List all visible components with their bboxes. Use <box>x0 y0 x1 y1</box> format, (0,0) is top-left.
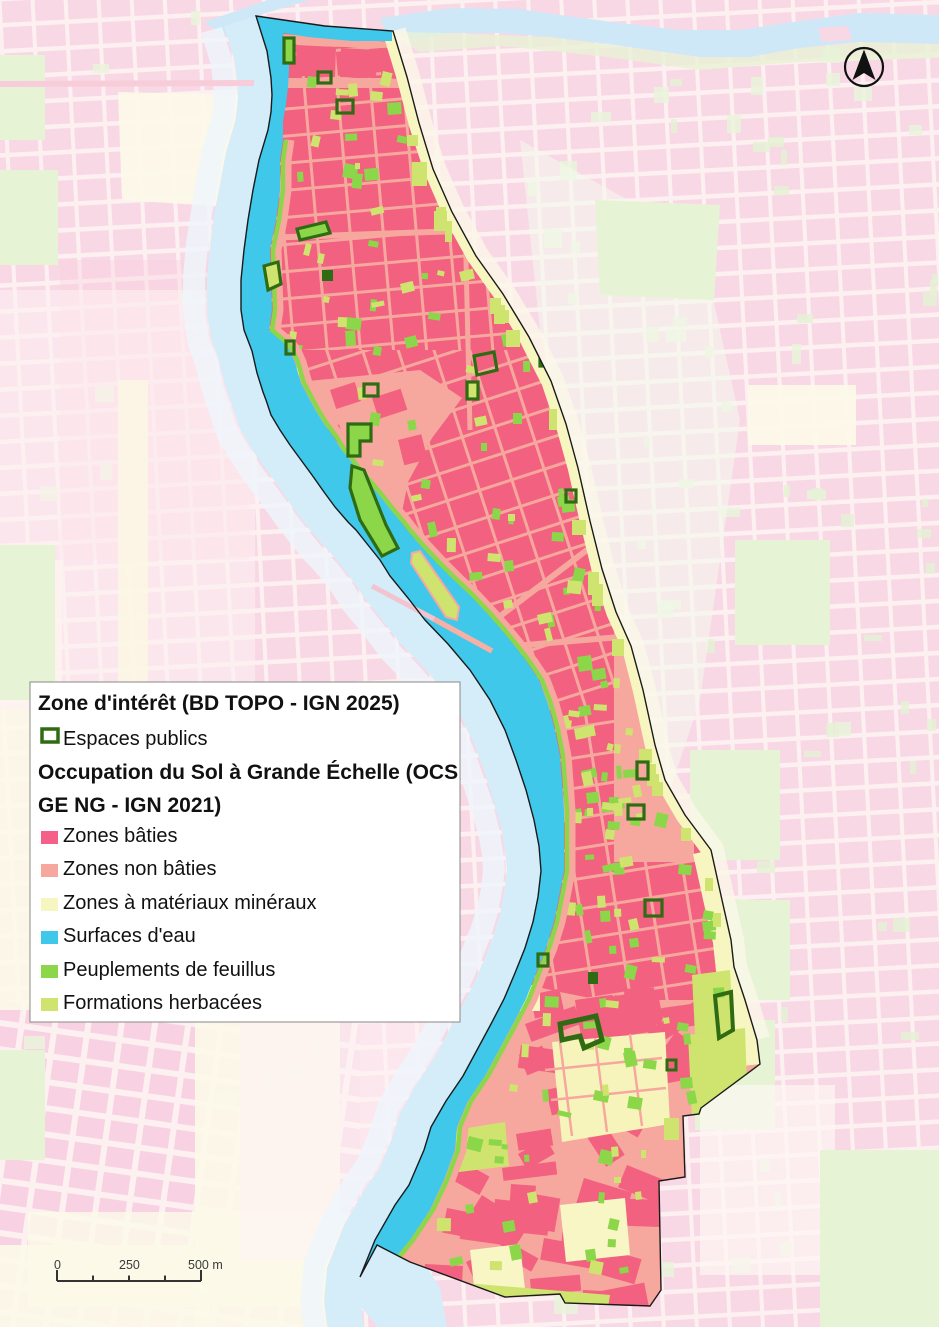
svg-text:Zones bâties: Zones bâties <box>63 825 178 847</box>
svg-text:GE NG - IGN 2021): GE NG - IGN 2021) <box>38 794 221 817</box>
svg-text:Occupation du Sol à Grande Éch: Occupation du Sol à Grande Échelle (OCS <box>38 761 458 784</box>
svg-text:250: 250 <box>119 1258 140 1272</box>
svg-text:Peuplements de feuillus: Peuplements de feuillus <box>63 959 275 981</box>
svg-text:Zones à matériaux minéraux: Zones à matériaux minéraux <box>63 892 316 914</box>
svg-text:Zone d'intérêt (BD TOPO - IGN: Zone d'intérêt (BD TOPO - IGN 2025) <box>38 692 400 715</box>
svg-text:0: 0 <box>54 1258 61 1272</box>
svg-text:Zones non bâties: Zones non bâties <box>63 858 216 880</box>
svg-text:Espaces publics: Espaces publics <box>63 728 208 750</box>
svg-text:Formations herbacées: Formations herbacées <box>63 992 262 1014</box>
svg-text:500 m: 500 m <box>188 1258 223 1272</box>
svg-text:Surfaces d'eau: Surfaces d'eau <box>63 925 196 947</box>
